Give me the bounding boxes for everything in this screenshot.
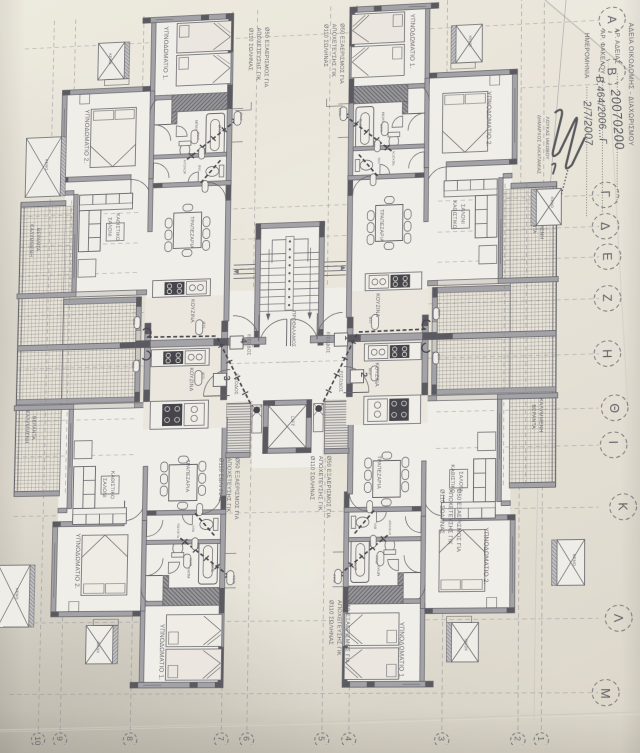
svg-text:ΚΑΘΙΣΤΙΚΟ: ΚΑΘΙΣΤΙΚΟ [114,213,121,241]
svg-text:Ø110 ΣΩΛΗΝΑΣ: Ø110 ΣΩΛΗΝΑΣ [322,24,329,68]
svg-text:Γ: Γ [598,190,611,197]
svg-text:ΚΕΝΟ: ΚΕΝΟ [44,159,48,170]
svg-text:ΚΟΥΖΙΝΑ: ΚΟΥΖΙΝΑ [373,363,380,388]
svg-text:Ø110 ΣΩΛΗΝΑΣ: Ø110 ΣΩΛΗΝΑΣ [438,489,445,535]
svg-text:ΥΠΝΟΔΩΜΑΤΙΟ 1.: ΥΠΝΟΔΩΜΑΤΙΟ 1. [408,14,415,69]
svg-text:ΒΕΡΑΝΤΑ: ΒΕΡΑΝΤΑ [34,228,41,252]
svg-text:Ø50 ΕΞΑΕΡΙΣΜΟΣ ΓΙΑ: Ø50 ΕΞΑΕΡΙΣΜΟΣ ΓΙΑ [324,456,331,519]
svg-text:ΑΠΟΧΕΤΕΥΣΗΣ ΓΙΚ: ΑΠΟΧΕΤΕΥΣΗΣ ΓΙΚ [255,27,262,81]
svg-text:ΚΕΝΟ: ΚΕΝΟ [572,554,576,566]
svg-text:Μ: Μ [598,688,611,699]
svg-text:6: 6 [241,736,251,741]
svg-text:ΤΡΑΠΕΖΑΡΙΑ: ΤΡΑΠΕΖΑΡΙΑ [184,459,191,493]
svg-text:ΥΠΝΟΔΩΜΑΤΙΟ 1.: ΥΠΝΟΔΩΜΑΤΙΟ 1. [397,622,404,679]
svg-text:Δ: Δ [598,222,611,231]
svg-text:ΑΠΟΧΕΤΕΥΣΗΣ ΓΙΚ: ΑΠΟΧΕΤΕΥΣΗΣ ΓΙΚ [446,489,453,545]
svg-text:ΔΗΜΑΡΧΟΣ ΛΑΚΑΤΑΜΙΑΣ: ΔΗΜΑΡΧΟΣ ΛΑΚΑΤΑΜΙΑΣ [536,115,542,174]
svg-text:1: 1 [343,335,354,341]
svg-text:Ζ: Ζ [600,294,613,302]
svg-text:7: 7 [216,736,226,741]
svg-text:Ø50 ΕΞΑΕΡΙΣΜΟΣ ΓΙΑ: Ø50 ΕΞΑΕΡΙΣΜΟΣ ΓΙΑ [233,457,240,519]
svg-text:ΥΠΝΟΔΩΜΑΤΙΟ 2.: ΥΠΝΟΔΩΜΑΤΙΟ 2. [82,109,89,163]
svg-text:Ø50 ΕΞΑΕΡΙΣΜΟΣ ΓΙΑ: Ø50 ΕΞΑΕΡΙΣΜΟΣ ΓΙΑ [262,27,269,88]
svg-text:ΥΠΝΟΔΩΜΑΤΙΟ 2.: ΥΠΝΟΔΩΜΑΤΙΟ 2. [484,91,491,147]
svg-text:Ø50 ΕΞΑΕΡΙΣΜΟΣ ΓΙΑ: Ø50 ΕΞΑΕΡΙΣΜΟΣ ΓΙΑ [455,489,462,553]
svg-text:ΛΟΥΚΑΣ ΙΑΚΩΒΟΥ: ΛΟΥΚΑΣ ΙΑΚΩΒΟΥ [545,117,551,160]
svg-text:Β: Β [604,67,617,76]
svg-text:Ø50: Ø50 [132,319,136,326]
svg-text:ΠΡΟΘΑΛΑΜΟΣ: ΠΡΟΘΑΛΑΜΟΣ [291,311,297,347]
svg-text:Ø75: Ø75 [217,125,221,133]
svg-text:Ε: Ε [600,252,613,261]
svg-text:ΥΠΝΟΔΩΜΑΤΙΟ 2.: ΥΠΝΟΔΩΜΑΤΙΟ 2. [73,533,80,589]
svg-text:LIFT: LIFT [290,416,295,427]
svg-text:ΕΙΣΟΔΟΣ: ΕΙΣΟΔΟΣ [338,371,344,393]
svg-text:ΣΑΛΟΝΙ: ΣΑΛΟΝΙ [101,478,108,498]
svg-text:Ø110 ΣΩΛΗΝΑΣ: Ø110 ΣΩΛΗΝΑΣ [308,456,315,501]
svg-text:ΥΠΝΟΔΩΜΑΤΙΟ 1.: ΥΠΝΟΔΩΜΑΤΙΟ 1. [157,624,164,680]
svg-text:ΚΕΝΟ: ΚΕΝΟ [550,197,554,208]
svg-text:2: 2 [512,736,522,741]
svg-text:Α: Α [604,15,617,24]
svg-text:ΥΠΝΟΔΩΜΑΤΙΟ 2.: ΥΠΝΟΔΩΜΑΤΙΟ 2. [482,527,489,584]
svg-text:ΑΠΟΧΕΤΕΥΣΗΣ ΓΙΚ: ΑΠΟΧΕΤΕΥΣΗΣ ΓΙΚ [335,600,342,656]
svg-text:Ø110: Ø110 [239,112,243,120]
svg-text:Ø110 ΣΩΛΗΝΑΣ: Ø110 ΣΩΛΗΝΑΣ [247,28,254,72]
svg-text:Ø50 ΕΞΑΕΡΙΣΜΟΣ ΓΙΑ: Ø50 ΕΞΑΕΡΙΣΜΟΣ ΓΙΑ [338,23,345,84]
svg-text:Ø110: Ø110 [196,132,200,140]
svg-text:8: 8 [125,736,135,741]
svg-text:Η: Η [600,349,613,358]
svg-text:Λ: Λ [611,614,624,623]
svg-text:ΚΟΥΖΙΝΑ: ΚΟΥΖΙΝΑ [374,293,381,318]
svg-text:3: 3 [436,736,446,741]
svg-text:5: 5 [317,736,327,741]
svg-text:ΑΠΟΧΕΤΕΥΣΗΣ ΓΙΚ: ΑΠΟΧΕΤΕΥΣΗΣ ΓΙΚ [225,458,232,513]
svg-text:ΤΡΑΠΕΖΑΡΙΑ: ΤΡΑΠΕΖΑΡΙΑ [188,216,195,249]
svg-text:ΑΠΟΧΕΤΕΥΣΗΣ ΓΙΚ: ΑΠΟΧΕΤΕΥΣΗΣ ΓΙΚ [330,24,337,78]
svg-text:9: 9 [55,736,64,741]
svg-text:ΕΙΣΟΔΟΣ: ΕΙΣΟΔΟΣ [246,334,252,356]
svg-text:2: 2 [359,372,370,378]
svg-text:Ø110 ΣΩΛΗΝΑΣ: Ø110 ΣΩΛΗΝΑΣ [327,600,334,646]
svg-text:ΑΠΟΧΕΤΕΥΣΗΣ ΓΙΚ: ΑΠΟΧΕΤΕΥΣΗΣ ΓΙΚ [316,456,323,511]
svg-text:ΣΑΛΟΝΙ: ΣΑΛΟΝΙ [106,217,113,237]
svg-text:Θ: Θ [607,403,620,413]
svg-text:ΚΕΝΟ: ΚΕΝΟ [15,588,19,600]
svg-text:10: 10 [33,736,43,745]
svg-text:Ø75: Ø75 [201,372,205,379]
svg-text:ΥΠΝΟΔΩΜΑΤΙΟ 1.: ΥΠΝΟΔΩΜΑΤΙΟ 1. [161,26,168,80]
svg-text:ΕΙΣΟΔΟΣ: ΕΙΣΟΔΟΣ [234,373,240,395]
svg-text:ΚΑΘΙΣΤΙΚΟ: ΚΑΘΙΣΤΙΚΟ [109,471,116,499]
svg-text:ΚΑΛΥΜΜΕΝΗ: ΚΑΛΥΜΜΕΝΗ [28,224,35,257]
svg-text:Ø50: Ø50 [131,362,135,369]
svg-text:ΚΟΥΖΙΝΑ: ΚΟΥΖΙΝΑ [189,299,196,323]
svg-text:ΕΙΣΟΔΟΣ: ΕΙΣΟΔΟΣ [325,332,331,354]
svg-text:Κ: Κ [615,502,628,511]
svg-text:ΚΕΝΟ: ΚΕΝΟ [108,53,112,64]
svg-text:1: 1 [536,736,546,741]
svg-text:ΚΟΥΖΙΝΑ: ΚΟΥΖΙΝΑ [187,368,194,392]
svg-text:ΑΔΕΙΑ ΟΙΚΟΔΟΜΗΣ - ΔΙΑΧΩΡΙΣΜΟΥ: ΑΔΕΙΑ ΟΙΚΟΔΟΜΗΣ - ΔΙΑΧΩΡΙΣΜΟΥ [627,23,635,147]
svg-text:ΤΡΑΠΕΖΑΡΙΑ: ΤΡΑΠΕΖΑΡΙΑ [378,209,385,242]
svg-text:Ø50: Ø50 [197,165,201,172]
svg-text:ΑΠΟΧΩΡ.: ΑΠΟΧΩΡ. [182,160,186,175]
svg-text:2/7/2007: 2/7/2007 [580,99,594,146]
svg-text:Ι: Ι [606,440,619,444]
svg-text:3: 3 [222,376,233,381]
svg-text:ΑΡ. ΦΑΚΕΛΟΥ: ΑΡ. ΦΑΚΕΛΟΥ [598,30,605,74]
svg-text:Ø50: Ø50 [203,148,207,155]
svg-text:Ø75: Ø75 [202,322,206,329]
svg-text:Ø110 ΣΩΛΗΝΑΣ: Ø110 ΣΩΛΗΝΑΣ [217,458,224,503]
svg-text:ΑΡ. ΑΔΕΙΑΣ: ΑΡ. ΑΔΕΙΑΣ [613,28,620,64]
svg-text:ΒΕΡΑΝΤΑ: ΒΕΡΑΝΤΑ [30,416,37,440]
svg-text:ΗΜΕΡΟΜΗΝΙΑ: ΗΜΕΡΟΜΗΝΙΑ [583,33,590,79]
svg-text:20070200: 20070200 [608,87,628,150]
svg-text:Ø50 ΕΞΑΕΡΙΣΜΟΣ ΓΙΑ: Ø50 ΕΞΑΕΡΙΣΜΟΣ ΓΙΑ [343,600,350,664]
svg-text:Β.464/2006...Γ: Β.464/2006...Γ [593,76,609,146]
svg-text:ΚΑΛΥΜΜΕΝΗ: ΚΑΛΥΜΜΕΝΗ [23,410,30,444]
svg-text:4: 4 [343,736,353,741]
